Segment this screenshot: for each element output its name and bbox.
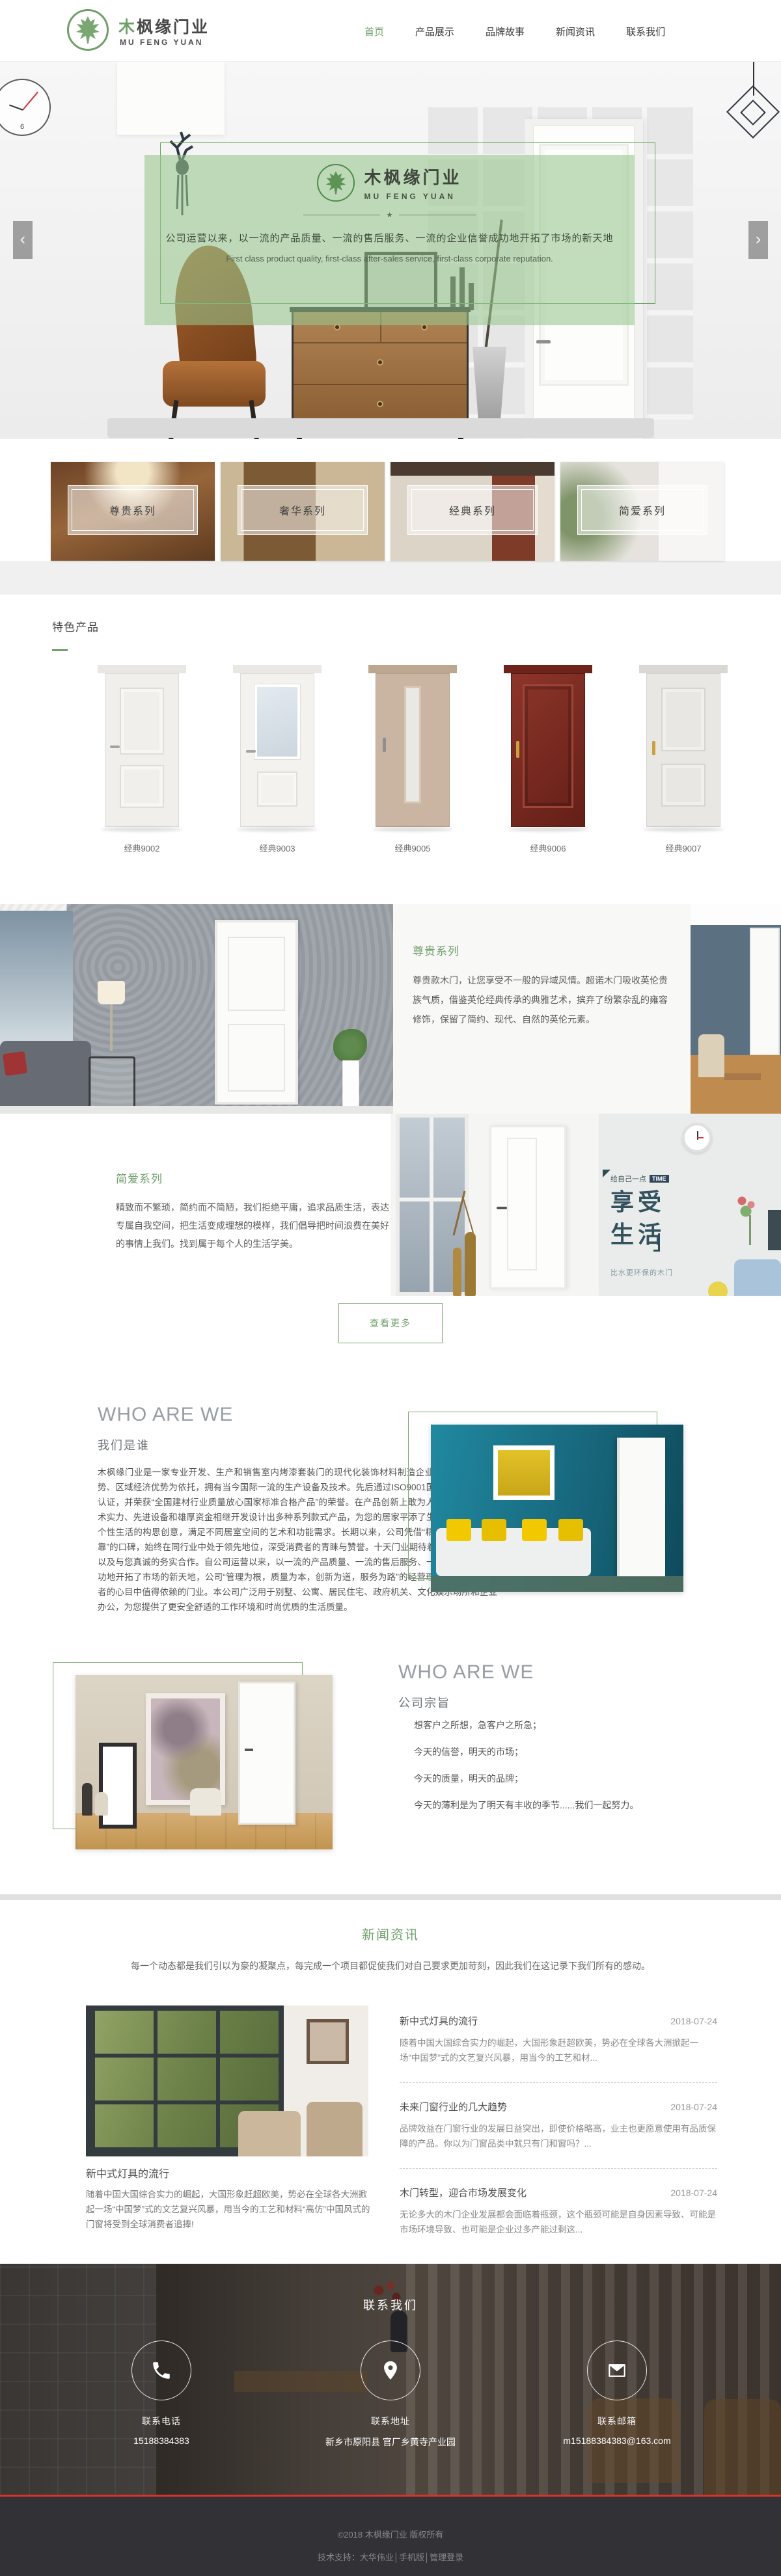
hero-wall-clock-graphic: 6 — [0, 79, 51, 136]
news-item-title: 未来门窗行业的几大趋势 — [400, 2100, 507, 2113]
news-section-subtitle: 每一个动态都是我们引以为豪的凝聚点，每完成一个项目都促使我们对自己要求更加苛刻，… — [0, 1959, 781, 1972]
promo-time-tag: TIME — [650, 1175, 669, 1183]
series-card-label: 尊贵系列 — [109, 502, 156, 518]
featured-section-title: 特色产品 — [52, 618, 99, 634]
hero-dresser-graphic — [292, 310, 469, 425]
motto-line: 今天的信誉，明天的市场； — [414, 1745, 638, 1758]
news-item-snippet: 品牌效益在门窗行业的发展日益突出，即使价格略高，业主也更愿意使用有品质保障的产品… — [400, 2121, 717, 2151]
motto-line: 今天的质量，明天的品牌； — [414, 1772, 638, 1785]
footer-address-label: 联系地址 — [292, 2415, 489, 2428]
about2-image — [75, 1675, 333, 1849]
phone-icon[interactable] — [131, 2341, 191, 2400]
promo-small-text: 给自己一点 — [610, 1174, 646, 1184]
view-more-button[interactable]: 查看更多 — [338, 1303, 443, 1343]
footer: 联系我们 联系电话 15188384383 联系地址 新乡市原阳县 官厂乡黄寺产… — [0, 2264, 781, 2497]
news-item-snippet: 随着中国大国综合实力的崛起，大国形象赶超欧美，势必在全球各大洲掀起一场“中国梦”… — [400, 2035, 717, 2065]
news-item-date: 2018-07-24 — [670, 2188, 717, 2198]
location-icon[interactable] — [361, 2341, 420, 2400]
hero-divider: ★ — [303, 211, 476, 219]
brand-name-cn: 木枫缘门业 — [118, 14, 210, 38]
zungui-room-image — [0, 904, 393, 1114]
bottom-bar: ©2018 木枫缘门业 版权所有 技术支持：大华伟业│手机版│管理登录 — [0, 2497, 781, 2576]
news-feature-title[interactable]: 新中式灯具的流行 — [86, 2165, 169, 2180]
footer-phone-label: 联系电话 — [62, 2415, 260, 2428]
news-feature-text: 随着中国大国综合实力的崛起，大国形象赶超欧美，势必在全球各大洲掀起一场“中国梦”… — [86, 2187, 375, 2232]
series-card-zungui[interactable]: 尊贵系列 — [51, 462, 215, 561]
view-more-label: 查看更多 — [370, 1317, 411, 1330]
promo-flowers-graphic — [734, 1193, 760, 1219]
series-cards: 尊贵系列 奢华系列 经典系列 简爱系列 — [51, 462, 730, 561]
about1-heading-en: WHO ARE WE — [98, 1404, 233, 1426]
news-list: 新中式灯具的流行 2018-07-24 随着中国大国综合实力的崛起，大国形象赶超… — [400, 2007, 717, 2254]
news-list-item[interactable]: 未来门窗行业的几大趋势 2018-07-24 品牌效益在门窗行业的发展日益突出，… — [400, 2082, 717, 2168]
footer-contact-phone: 联系电话 15188384383 — [62, 2341, 260, 2446]
zungui-section: 尊贵系列 尊贵款木门，让您享受不一般的异域风情。超诺木门吸收英伦贵族气质，借鉴英… — [0, 904, 781, 1114]
featured-title-underline — [52, 649, 68, 651]
door-product-image — [504, 665, 592, 833]
about1-heading-cn: 我们是谁 — [98, 1436, 150, 1453]
nav-item-home[interactable]: 首页 — [364, 25, 384, 38]
footer-contact-address: 联系地址 新乡市原阳县 官厂乡黄寺产业园 — [292, 2341, 489, 2449]
news-list-item[interactable]: 木门转型，迎合市场发展变化 2018-07-24 无论多大的木门企业发展都会面临… — [400, 2168, 717, 2254]
zungui-side-image — [691, 904, 781, 1114]
news-item-title: 新中式灯具的流行 — [400, 2014, 478, 2028]
promo-text-block: 给自己一点TIME 享受 生活 — [610, 1174, 669, 1249]
support-text[interactable]: 技术支持：大华伟业│手机版│管理登录 — [0, 2551, 781, 2563]
promo-stem-graphic — [749, 1215, 751, 1245]
product-item[interactable]: 经典9007 — [639, 665, 728, 854]
series-card-label: 经典系列 — [449, 502, 496, 518]
motto-line: 想客户之所想，急客户之所急； — [414, 1719, 638, 1732]
product-label: 经典9006 — [504, 842, 592, 854]
hero-logo-cn: 木枫缘门业 — [364, 165, 461, 189]
hero-rug-graphic — [107, 418, 654, 438]
door-product-image — [98, 665, 186, 833]
hero-slogan-cn: 公司运营以来，以一流的产品质量、一流的售后服务、一流的企业信誉成功地开拓了市场的… — [165, 231, 613, 245]
zungui-title: 尊贵系列 — [413, 942, 459, 958]
nav-item-news[interactable]: 新闻资讯 — [556, 25, 595, 38]
main-nav: 首页 产品展示 品牌故事 新闻资讯 联系我们 — [364, 25, 665, 38]
footer-contact-email: 联系邮箱 m15188384383@163.com — [518, 2341, 716, 2446]
promo-frame-graphic — [768, 1210, 781, 1250]
series-card-label: 简爱系列 — [619, 502, 666, 518]
nav-item-contact[interactable]: 联系我们 — [626, 25, 665, 38]
footer-red-line — [0, 2495, 781, 2497]
jianai-title: 简爱系列 — [116, 1170, 163, 1186]
door-product-image — [639, 665, 728, 833]
nav-item-products[interactable]: 产品展示 — [415, 25, 454, 38]
jianai-paragraph: 精致而不繁琐，简约而不简陋，我们拒绝平庸，追求品质生活，表达专属自我空间，把生活… — [116, 1198, 389, 1253]
product-item[interactable]: 经典9002 — [98, 665, 186, 854]
about2-heading-cn: 公司宗旨 — [398, 1694, 450, 1711]
page: 木枫缘门业 MU FENG YUAN 首页 产品展示 品牌故事 新闻资讯 联系我… — [0, 0, 781, 2576]
featured-products-row: 经典9002 经典9003 经典9005 经典9006 经典9007 — [98, 665, 728, 854]
hero-logo-en: MU FENG YUAN — [364, 192, 461, 201]
brand-name-en: MU FENG YUAN — [120, 38, 203, 47]
news-item-snippet: 无论多大的木门企业发展都会面临着瓶颈，这个瓶颈可能是自身因素导致、可能是市场环境… — [400, 2207, 717, 2237]
zungui-text-panel: 尊贵系列 尊贵款木门，让您享受不一般的异域风情。超诺木门吸收英伦贵族气质，借鉴英… — [393, 904, 691, 1114]
promo-sofa-graphic — [734, 1259, 781, 1296]
promo-subtitle: 比水更环保的木门 — [610, 1267, 673, 1278]
news-section-divider — [0, 1894, 781, 1900]
door-product-image — [233, 665, 322, 833]
product-label: 经典9007 — [639, 842, 728, 854]
jianai-promo-image: 给自己一点TIME 享受 生活 比水更环保的木门 — [599, 1114, 781, 1296]
email-icon[interactable] — [587, 2341, 647, 2400]
nav-item-story[interactable]: 品牌故事 — [486, 25, 525, 38]
footer-email-label: 联系邮箱 — [518, 2415, 716, 2428]
carousel-prev-arrow-icon[interactable]: ‹ — [13, 221, 33, 259]
series-card-shehua[interactable]: 奢华系列 — [221, 462, 385, 561]
header: 木枫缘门业 MU FENG YUAN 首页 产品展示 品牌故事 新闻资讯 联系我… — [0, 0, 781, 62]
hero-banner: 6 — [0, 62, 781, 439]
promo-clock-graphic — [682, 1123, 712, 1153]
door-product-image — [368, 665, 457, 833]
product-item[interactable]: 经典9005 — [368, 665, 457, 854]
footer-email-value[interactable]: m15188384383@163.com — [518, 2435, 716, 2446]
news-item-date: 2018-07-24 — [670, 2102, 717, 2112]
product-label: 经典9002 — [98, 842, 186, 854]
hero-overlay-panel: 木枫缘门业 MU FENG YUAN ★ 公司运营以来，以一流的产品质量、一流的… — [144, 155, 635, 325]
star-icon: ★ — [387, 211, 393, 219]
jianai-door-image — [390, 1114, 599, 1296]
product-item[interactable]: 经典9003 — [233, 665, 322, 854]
jianai-section: 简爱系列 精致而不繁琐，简约而不简陋，我们拒绝平庸，追求品质生活，表达专属自我空… — [0, 1114, 781, 1296]
hero-maple-leaf-icon — [317, 164, 355, 202]
news-feature-image[interactable] — [86, 2006, 368, 2156]
product-label: 经典9005 — [368, 842, 457, 854]
zungui-paragraph: 尊贵款木门，让您享受不一般的异域风情。超诺木门吸收英伦贵族气质，借鉴英伦经典传承… — [413, 971, 670, 1029]
promo-big-text-2: 生活 — [610, 1220, 669, 1249]
news-section-title: 新闻资讯 — [0, 1924, 781, 1943]
about2-motto-lines: 想客户之所想，急客户之所急； 今天的信誉，明天的市场； 今天的质量，明天的品牌；… — [414, 1719, 638, 1825]
series-gray-strip — [0, 561, 781, 595]
promo-big-text-1: 享受 — [610, 1188, 669, 1216]
about1-image — [431, 1425, 683, 1592]
hero-logo: 木枫缘门业 MU FENG YUAN — [317, 164, 461, 202]
news-list-item[interactable]: 新中式灯具的流行 2018-07-24 随着中国大国综合实力的崛起，大国形象赶超… — [400, 2007, 717, 2082]
about2-heading-en: WHO ARE WE — [398, 1661, 534, 1684]
copyright-text: ©2018 木枫缘门业 版权所有 — [0, 2497, 781, 2540]
news-item-date: 2018-07-24 — [670, 2016, 717, 2026]
footer-title: 联系我们 — [0, 2296, 781, 2313]
carousel-next-arrow-icon[interactable]: › — [748, 221, 768, 259]
product-item[interactable]: 经典9006 — [504, 665, 592, 854]
motto-line: 今天的薄利是为了明天有丰收的季节......我们一起努力。 — [414, 1799, 638, 1812]
series-card-jingdian[interactable]: 经典系列 — [390, 462, 555, 561]
series-card-label: 奢华系列 — [279, 502, 326, 518]
brand-logo[interactable] — [67, 9, 109, 51]
series-card-jianai[interactable]: 简爱系列 — [560, 462, 724, 561]
news-item-title: 木门转型，迎合市场发展变化 — [400, 2186, 527, 2199]
maple-leaf-icon — [75, 15, 101, 45]
product-label: 经典9003 — [233, 842, 322, 854]
promo-ball-graphic — [708, 1281, 728, 1296]
footer-phone-value[interactable]: 15188384383 — [62, 2435, 260, 2446]
hero-slogan-en: First class product quality, first-class… — [226, 254, 553, 263]
footer-address-value: 新乡市原阳县 官厂乡黄寺产业园 — [292, 2435, 489, 2449]
